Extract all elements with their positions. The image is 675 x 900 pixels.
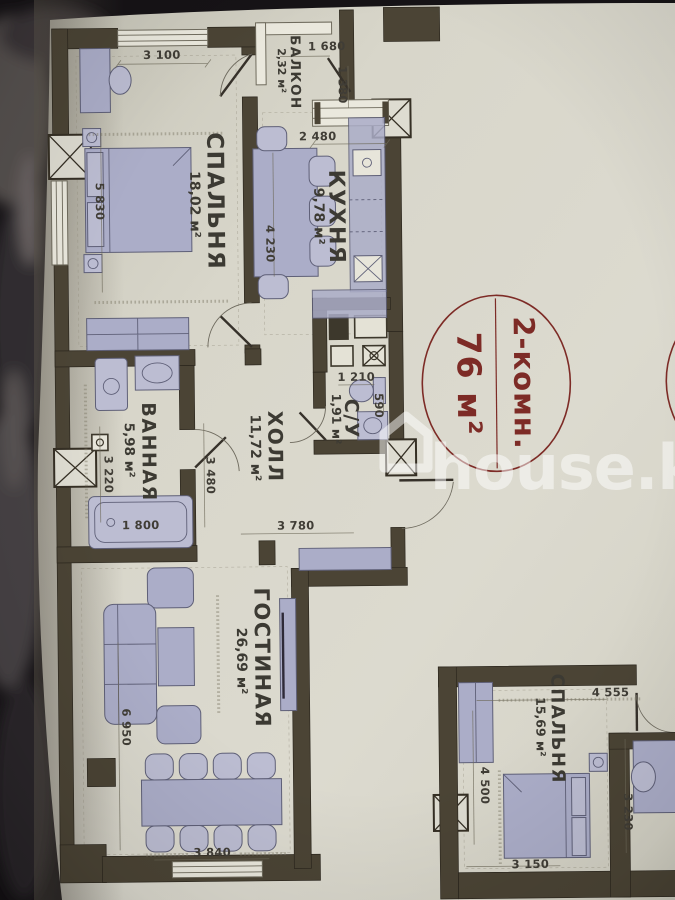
photo-vignette xyxy=(0,0,675,900)
floorplan-svg: СПАЛЬНЯ 18,02 м² КУХНЯ 9,78 м² БАЛКОН 2,… xyxy=(0,0,675,900)
floorplan-photo: СПАЛЬНЯ 18,02 м² КУХНЯ 9,78 м² БАЛКОН 2,… xyxy=(0,0,675,900)
